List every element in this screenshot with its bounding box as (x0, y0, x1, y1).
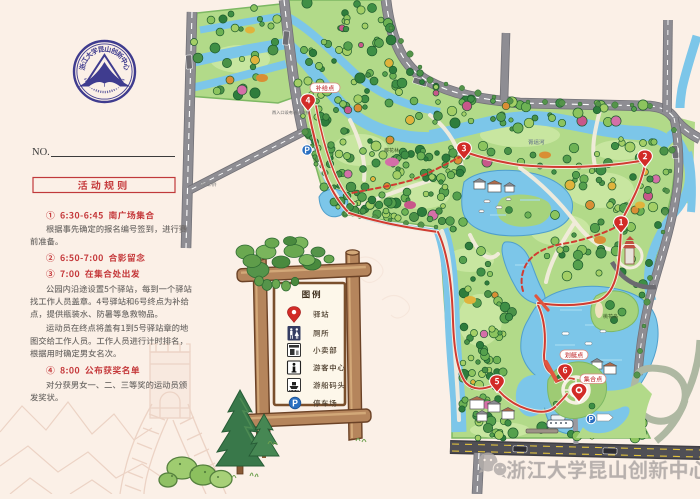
svg-text:NO.: NO. (32, 147, 50, 158)
